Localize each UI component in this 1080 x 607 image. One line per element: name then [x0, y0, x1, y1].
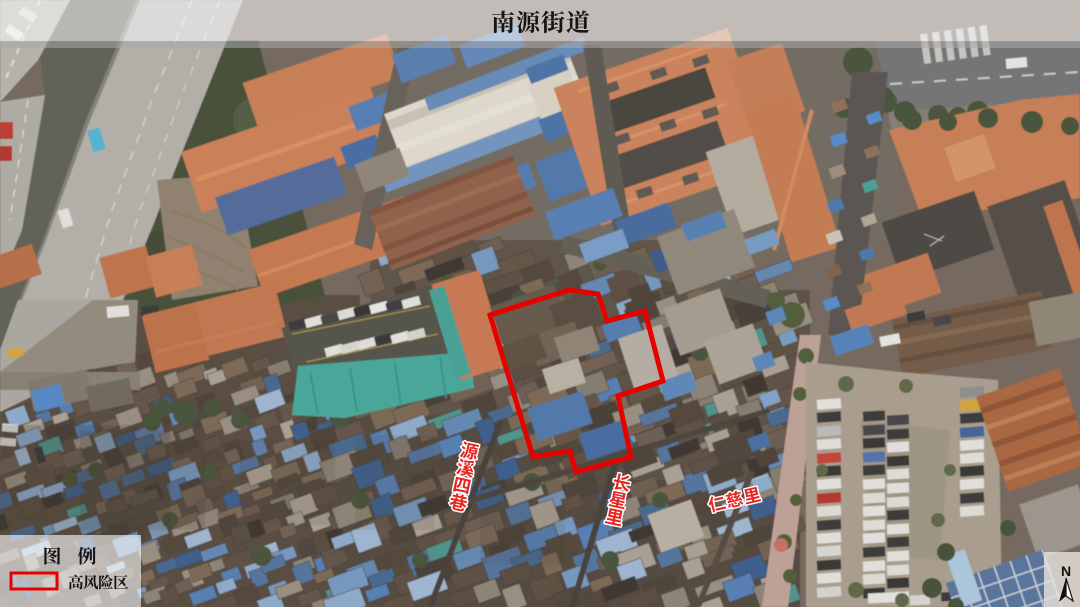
svg-text:N: N — [1061, 563, 1071, 579]
